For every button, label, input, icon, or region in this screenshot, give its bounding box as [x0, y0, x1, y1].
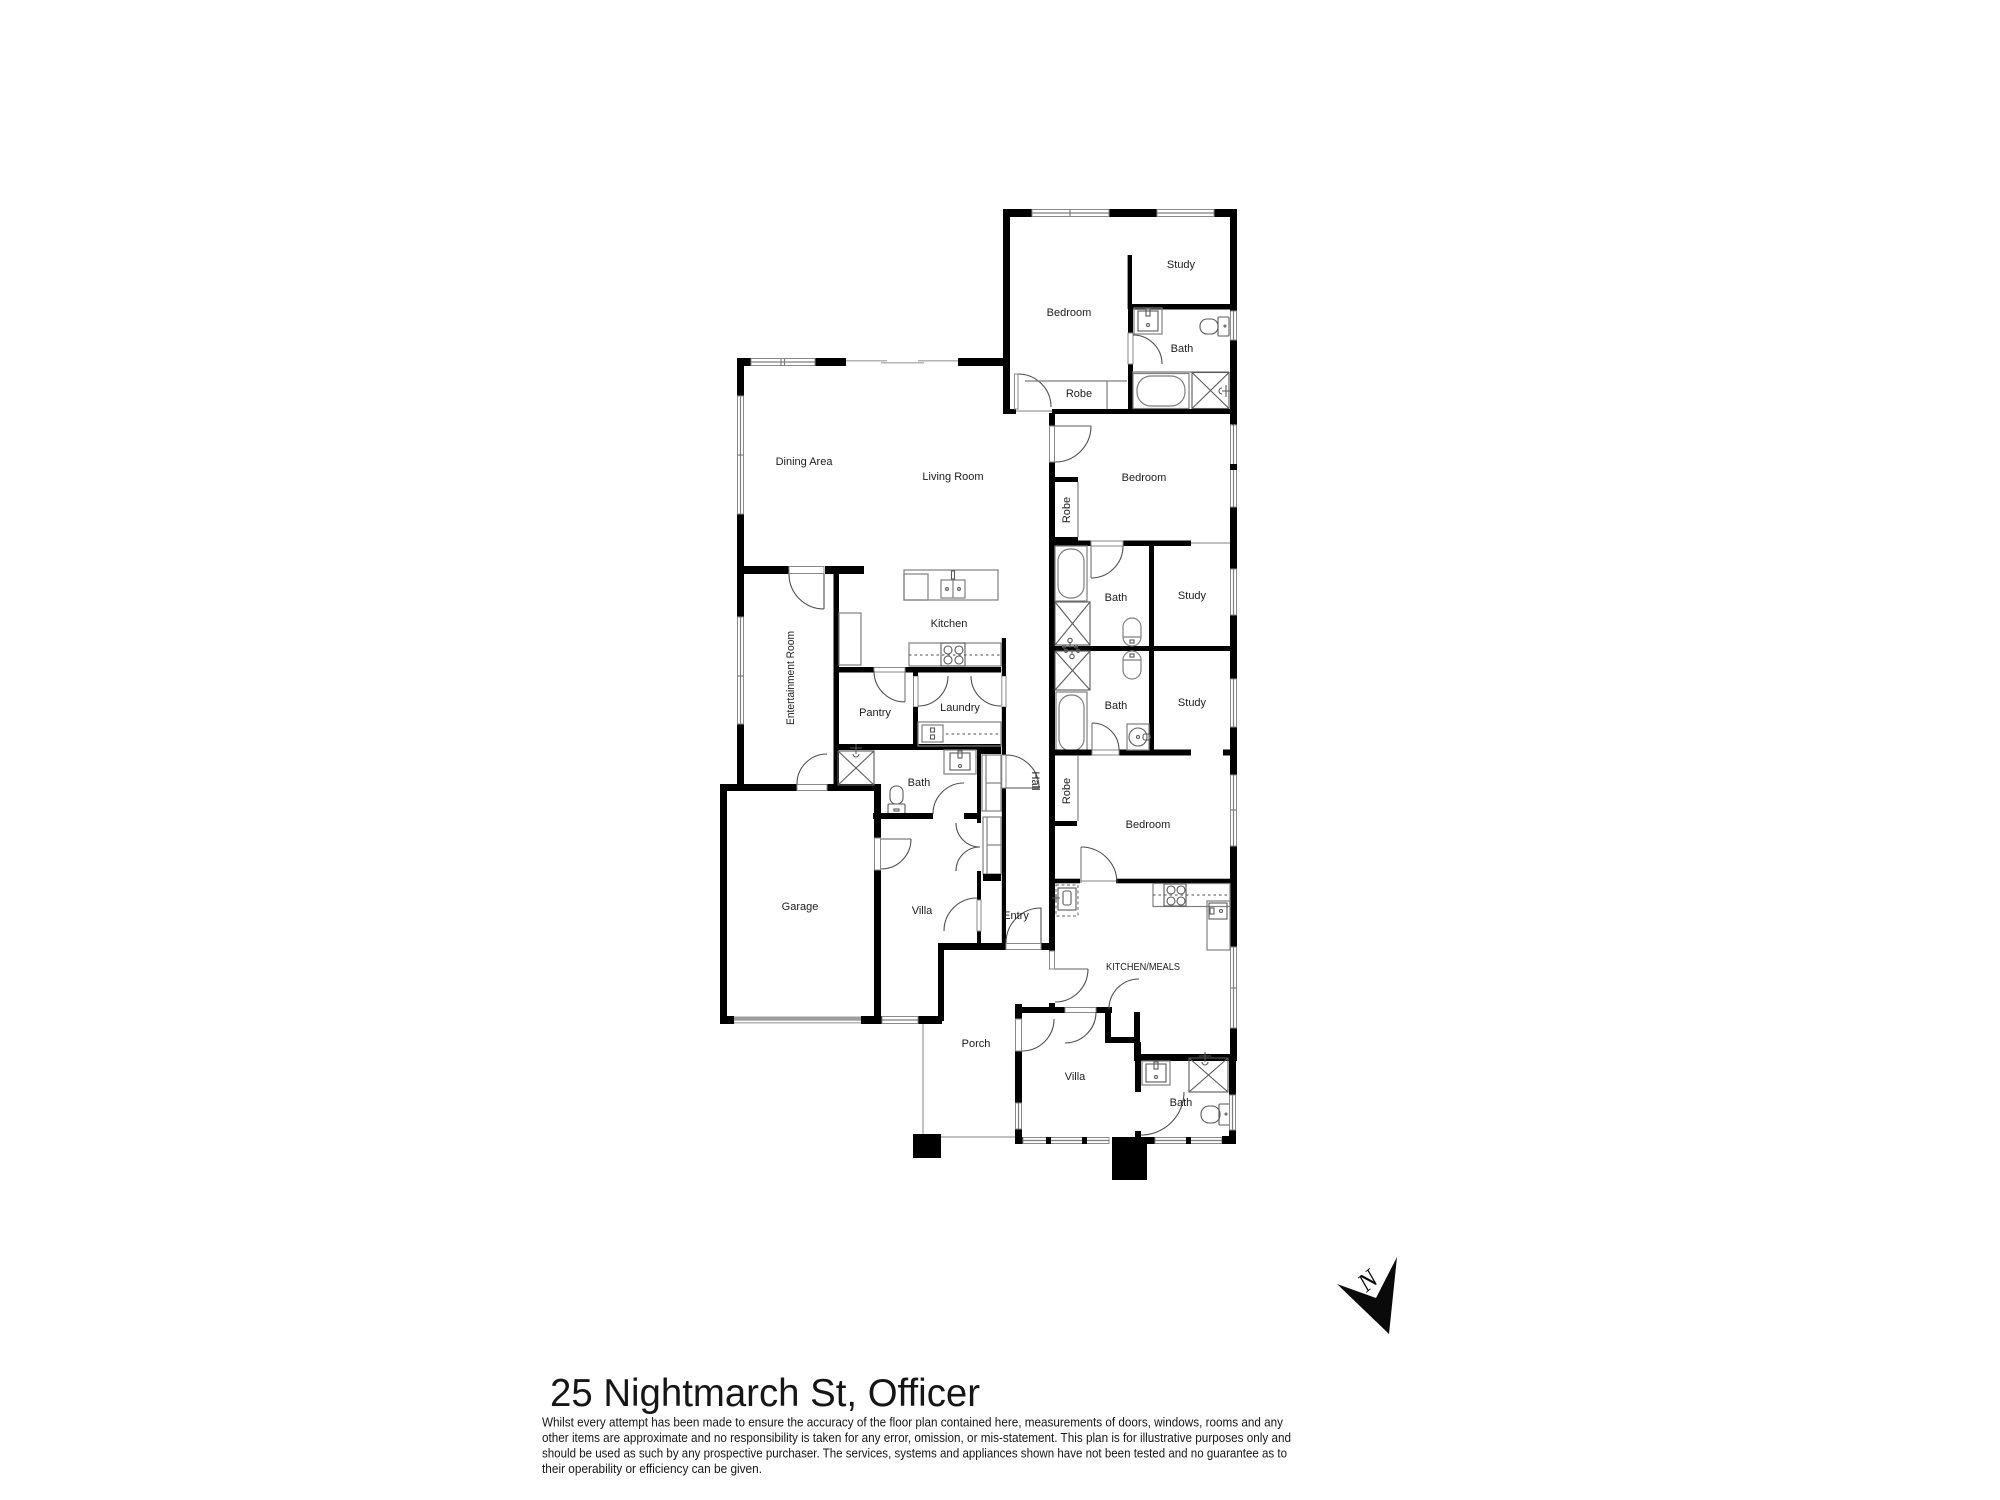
- svg-text:Bath: Bath: [1171, 343, 1194, 355]
- svg-text:Bedroom: Bedroom: [1047, 307, 1092, 319]
- svg-text:their operability or efficienc: their operability or efficiency can be g…: [542, 1461, 762, 1476]
- svg-text:Study: Study: [1178, 697, 1207, 709]
- svg-text:Bedroom: Bedroom: [1122, 472, 1167, 484]
- svg-text:Dining Area: Dining Area: [776, 456, 834, 468]
- svg-text:Robe: Robe: [1061, 497, 1073, 523]
- svg-text:Whilst every attempt has been: Whilst every attempt has been made to en…: [542, 1415, 1283, 1430]
- svg-text:KITCHEN/MEALS: KITCHEN/MEALS: [1106, 961, 1180, 973]
- svg-text:Living Room: Living Room: [922, 471, 983, 483]
- svg-text:Porch: Porch: [962, 1038, 991, 1050]
- svg-text:Entry: Entry: [1003, 910, 1029, 922]
- svg-text:Hall: Hall: [1029, 772, 1041, 791]
- svg-text:Robe: Robe: [1066, 388, 1092, 400]
- svg-text:should be used as such by any: should be used as such by any prospectiv…: [542, 1446, 1287, 1461]
- svg-text:25 Nightmarch St, Officer: 25 Nightmarch St, Officer: [550, 1372, 980, 1415]
- svg-text:Bath: Bath: [1170, 1097, 1193, 1109]
- svg-text:Villa: Villa: [912, 905, 933, 917]
- svg-text:Bath: Bath: [908, 777, 931, 789]
- svg-text:other items are approximate an: other items are approximate and no respo…: [542, 1430, 1291, 1445]
- svg-text:Villa: Villa: [1065, 1071, 1086, 1083]
- svg-text:Pantry: Pantry: [859, 707, 891, 719]
- svg-text:Study: Study: [1167, 259, 1196, 271]
- svg-text:Bath: Bath: [1105, 592, 1128, 604]
- svg-text:Entertainment Room: Entertainment Room: [785, 631, 797, 725]
- svg-text:Laundry: Laundry: [940, 702, 980, 714]
- svg-text:Bath: Bath: [1105, 700, 1128, 712]
- svg-text:Kitchen: Kitchen: [931, 618, 968, 630]
- svg-text:Robe: Robe: [1061, 778, 1073, 804]
- svg-text:Study: Study: [1178, 590, 1207, 602]
- svg-text:Bedroom: Bedroom: [1126, 819, 1171, 831]
- svg-text:Garage: Garage: [782, 901, 819, 913]
